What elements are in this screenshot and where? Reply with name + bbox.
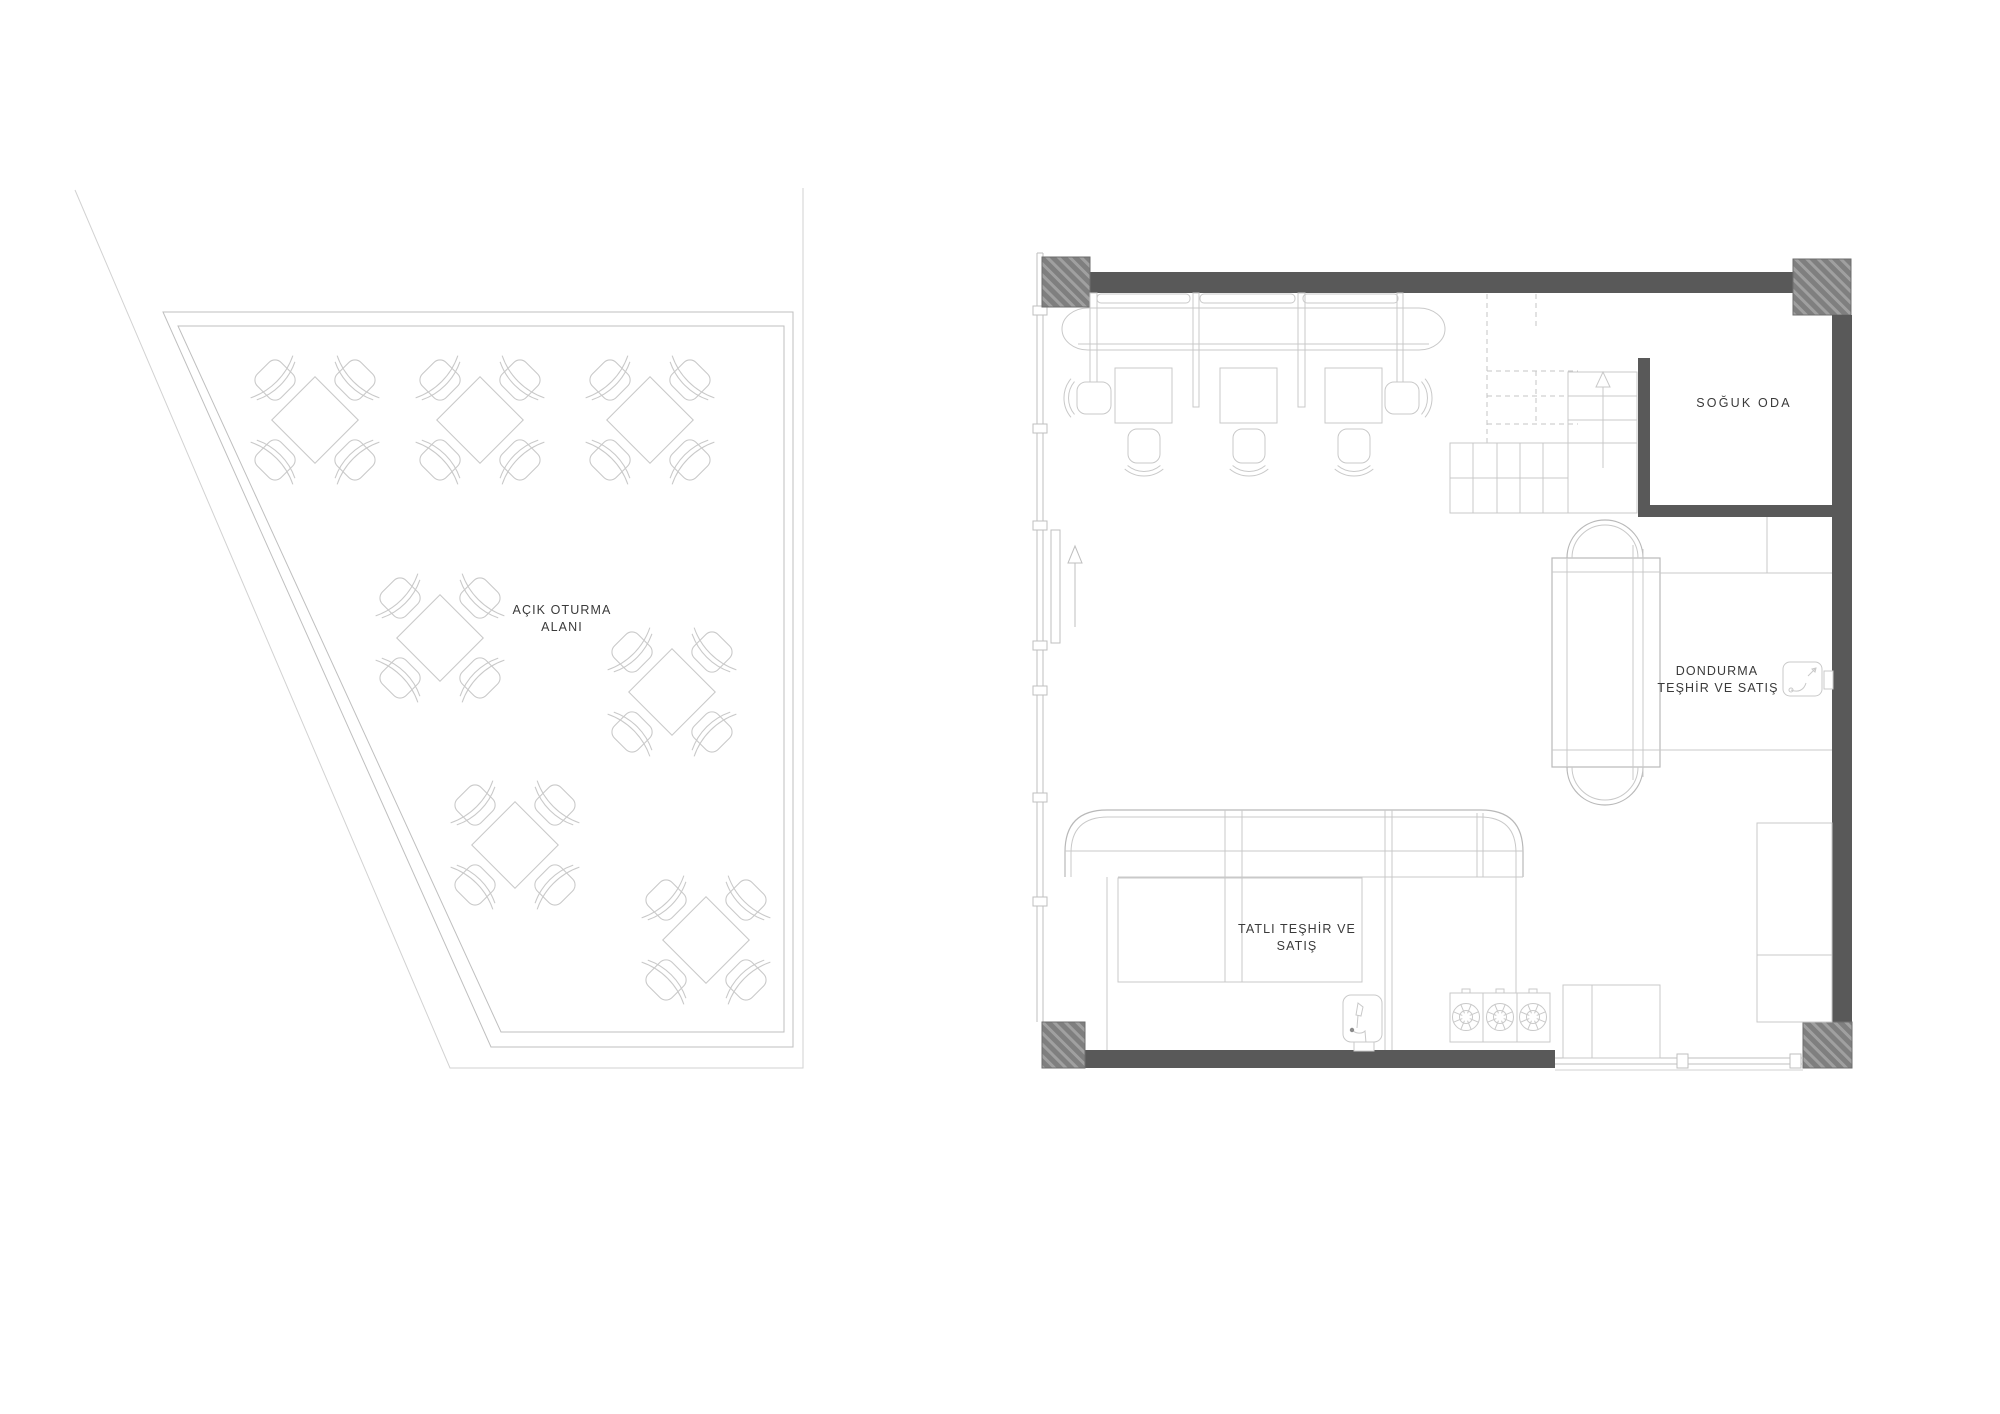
cabinet [1757, 823, 1832, 955]
cold-room-label: SOĞUK ODA [1696, 395, 1792, 410]
entry-door-leaf [1051, 530, 1060, 643]
window-mullion [1033, 793, 1047, 802]
ice-cream-label-line1: DONDURMA [1676, 664, 1758, 678]
window-mullion [1033, 686, 1047, 695]
window-mullion [1033, 424, 1047, 433]
window-mullion [1033, 521, 1047, 530]
column-hatched-bottom-right [1803, 1022, 1852, 1068]
cold-room-wall-left [1638, 358, 1650, 517]
window-mullion [1033, 897, 1047, 906]
wall-segment-top [1090, 272, 1793, 293]
wall-segment-right [1832, 315, 1852, 1022]
window-mullion [1790, 1054, 1801, 1068]
booth-table [1115, 368, 1172, 423]
outdoor-area-label-line1: AÇIK OTURMA [513, 603, 612, 617]
floor-plan-canvas: AÇIK OTURMA ALANI [0, 0, 2000, 1414]
dessert-label-line2: SATIŞ [1277, 939, 1318, 953]
floor-plan-drawing: AÇIK OTURMA ALANI [0, 0, 2000, 1414]
right-wall-cabinets [1757, 823, 1832, 1022]
window-mullion [1033, 641, 1047, 650]
window-mullion [1677, 1054, 1688, 1068]
sink-basin [1343, 995, 1382, 1042]
outdoor-area-label-line2: ALANI [541, 620, 583, 634]
paper-background [0, 0, 2000, 1414]
sink-drain [1354, 1042, 1374, 1051]
stove-body [1450, 993, 1550, 1042]
stove [1450, 989, 1550, 1042]
column-hatched-top-right [1793, 259, 1851, 315]
cabinet [1757, 955, 1832, 1022]
dessert-label-line1: TATLI TEŞHİR VE [1238, 922, 1356, 936]
booth-table [1325, 368, 1382, 423]
ice-cream-label-line2: TEŞHİR VE SATIŞ [1657, 681, 1778, 695]
sink-wall-fitting [1824, 671, 1833, 689]
cold-room-wall-bottom [1638, 505, 1833, 517]
wall-segment-bottom [1085, 1050, 1555, 1068]
booth-table [1220, 368, 1277, 423]
column-hatched-top-left [1042, 257, 1090, 307]
column-hatched-bottom-left [1042, 1022, 1085, 1068]
